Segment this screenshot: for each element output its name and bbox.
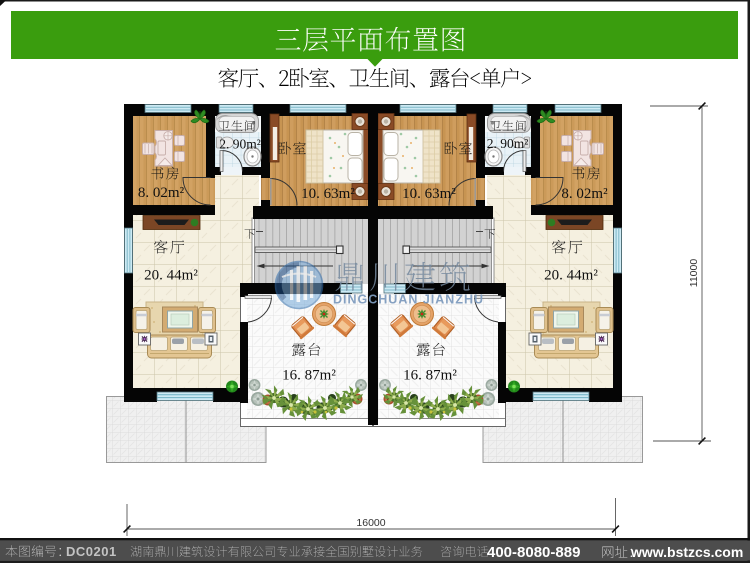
svg-text:20. 44m²: 20. 44m²: [144, 268, 198, 284]
svg-text:8. 02m²: 8. 02m²: [561, 186, 608, 202]
svg-text:DINGCHUAN JIANZHU: DINGCHUAN JIANZHU: [333, 293, 484, 307]
svg-text:400-8080-889: 400-8080-889: [487, 544, 580, 561]
svg-text:10. 63m²: 10. 63m²: [402, 186, 456, 202]
svg-text:8. 02m²: 8. 02m²: [138, 185, 185, 201]
svg-text:20. 44m²: 20. 44m²: [544, 268, 598, 284]
svg-text:2. 90m²: 2. 90m²: [219, 137, 261, 152]
svg-text:16. 87m²: 16. 87m²: [403, 368, 457, 384]
svg-text:10. 63m²: 10. 63m²: [301, 186, 355, 202]
svg-text:www.bstzcs.com: www.bstzcs.com: [630, 544, 743, 560]
svg-text:16000: 16000: [356, 517, 385, 529]
svg-text:11000: 11000: [688, 259, 700, 288]
svg-text:16. 87m²: 16. 87m²: [282, 368, 336, 384]
svg-text:2. 90m²: 2. 90m²: [487, 136, 529, 151]
svg-text:DC0201: DC0201: [66, 544, 117, 559]
